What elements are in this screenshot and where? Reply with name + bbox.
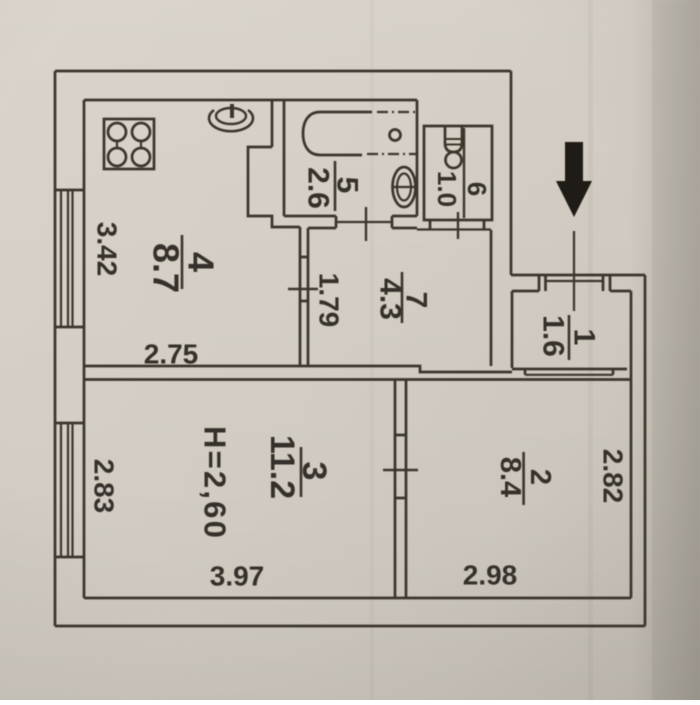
svg-text:1.6: 1.6 bbox=[537, 315, 570, 357]
svg-text:H=2,60: H=2,60 bbox=[198, 426, 233, 540]
svg-text:11.2: 11.2 bbox=[263, 435, 301, 499]
svg-text:1: 1 bbox=[568, 329, 601, 346]
svg-text:3.42: 3.42 bbox=[92, 222, 123, 277]
svg-text:2.75: 2.75 bbox=[144, 339, 199, 370]
svg-text:1.79: 1.79 bbox=[314, 273, 345, 328]
svg-text:2.6: 2.6 bbox=[302, 167, 335, 209]
svg-text:8.4: 8.4 bbox=[494, 457, 526, 497]
svg-text:3.97: 3.97 bbox=[210, 561, 265, 592]
svg-text:1.0: 1.0 bbox=[432, 171, 462, 207]
svg-text:2.83: 2.83 bbox=[89, 459, 120, 514]
svg-text:2.98: 2.98 bbox=[463, 560, 518, 591]
svg-text:2: 2 bbox=[524, 469, 556, 485]
svg-text:2.82: 2.82 bbox=[598, 449, 629, 504]
svg-text:6: 6 bbox=[462, 182, 492, 196]
svg-text:8.7: 8.7 bbox=[146, 243, 187, 293]
